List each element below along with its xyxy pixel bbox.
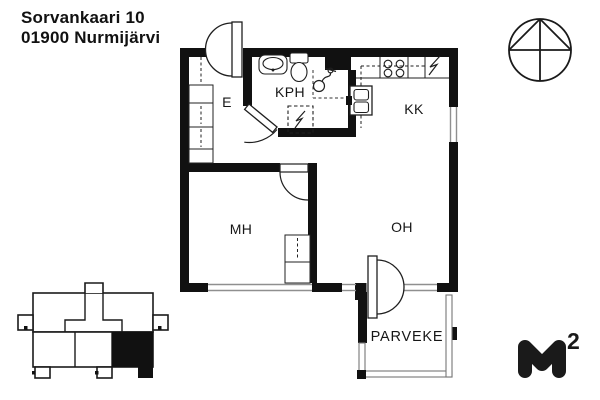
toilet-icon xyxy=(290,53,308,82)
shower-icon xyxy=(314,68,337,91)
floorplan-drawing: 2 xyxy=(0,0,600,400)
bedroom-window xyxy=(208,285,312,291)
room-label-bathroom: KPH xyxy=(275,84,305,100)
interior-walls xyxy=(189,48,457,343)
floorplan-page: 2 Sorvankaari 10 01900 Nurmijärvi E KPH … xyxy=(0,0,600,400)
kitchen-window xyxy=(451,107,457,142)
room-label-entry: E xyxy=(222,94,232,110)
tap xyxy=(346,96,352,105)
sink-icon xyxy=(346,86,372,115)
stove-icon xyxy=(384,60,404,77)
address-line-1: Sorvankaari 10 xyxy=(21,8,145,28)
m2-logo-letter xyxy=(525,347,559,371)
washbasin-icon xyxy=(259,55,287,74)
outer-walls xyxy=(180,48,458,300)
balcony-post xyxy=(357,370,366,379)
lightning-symbol xyxy=(429,56,440,75)
lightning-symbol xyxy=(295,111,305,128)
living-room-window-left xyxy=(342,285,356,291)
m2-logo: 2 xyxy=(525,328,580,371)
m2-logo-exponent: 2 xyxy=(567,328,580,354)
room-label-balcony: PARVEKE xyxy=(371,329,444,345)
balcony-door xyxy=(367,256,405,318)
room-label-bedroom: MH xyxy=(230,221,253,237)
building-locator-icon xyxy=(18,283,168,378)
bedroom-door xyxy=(280,164,308,200)
room-label-living-room: OH xyxy=(391,219,413,235)
address-line-2: 01900 Nurmijärvi xyxy=(21,28,160,48)
fridge-icon xyxy=(429,56,440,75)
compass-icon xyxy=(509,19,571,81)
vent-shaft xyxy=(325,48,351,70)
room-label-kitchenette: KK xyxy=(404,101,423,117)
entry-closets xyxy=(189,57,213,163)
highlighted-unit xyxy=(112,332,153,378)
entrance-door xyxy=(206,22,244,77)
bathroom-door xyxy=(244,104,277,143)
bedroom-closet xyxy=(285,235,310,283)
